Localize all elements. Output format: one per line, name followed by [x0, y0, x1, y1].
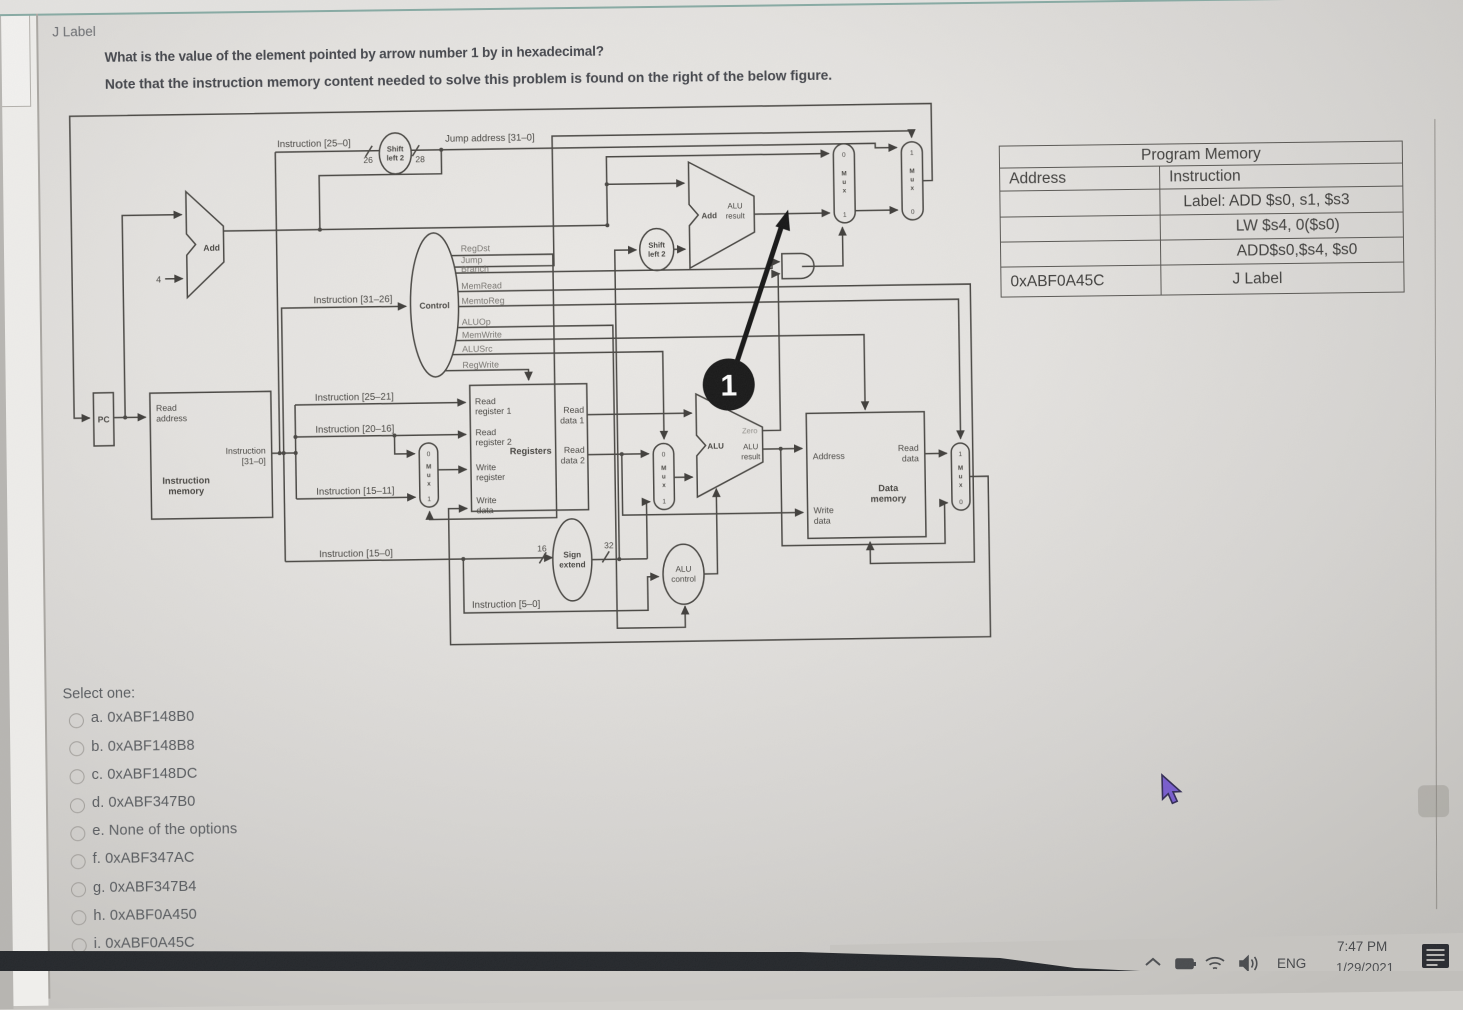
svg-text:ENG: ENG [1277, 956, 1306, 971]
svg-text:7:47 PM: 7:47 PM [1337, 939, 1387, 954]
svg-text:1/29/2021: 1/29/2021 [1336, 960, 1394, 971]
